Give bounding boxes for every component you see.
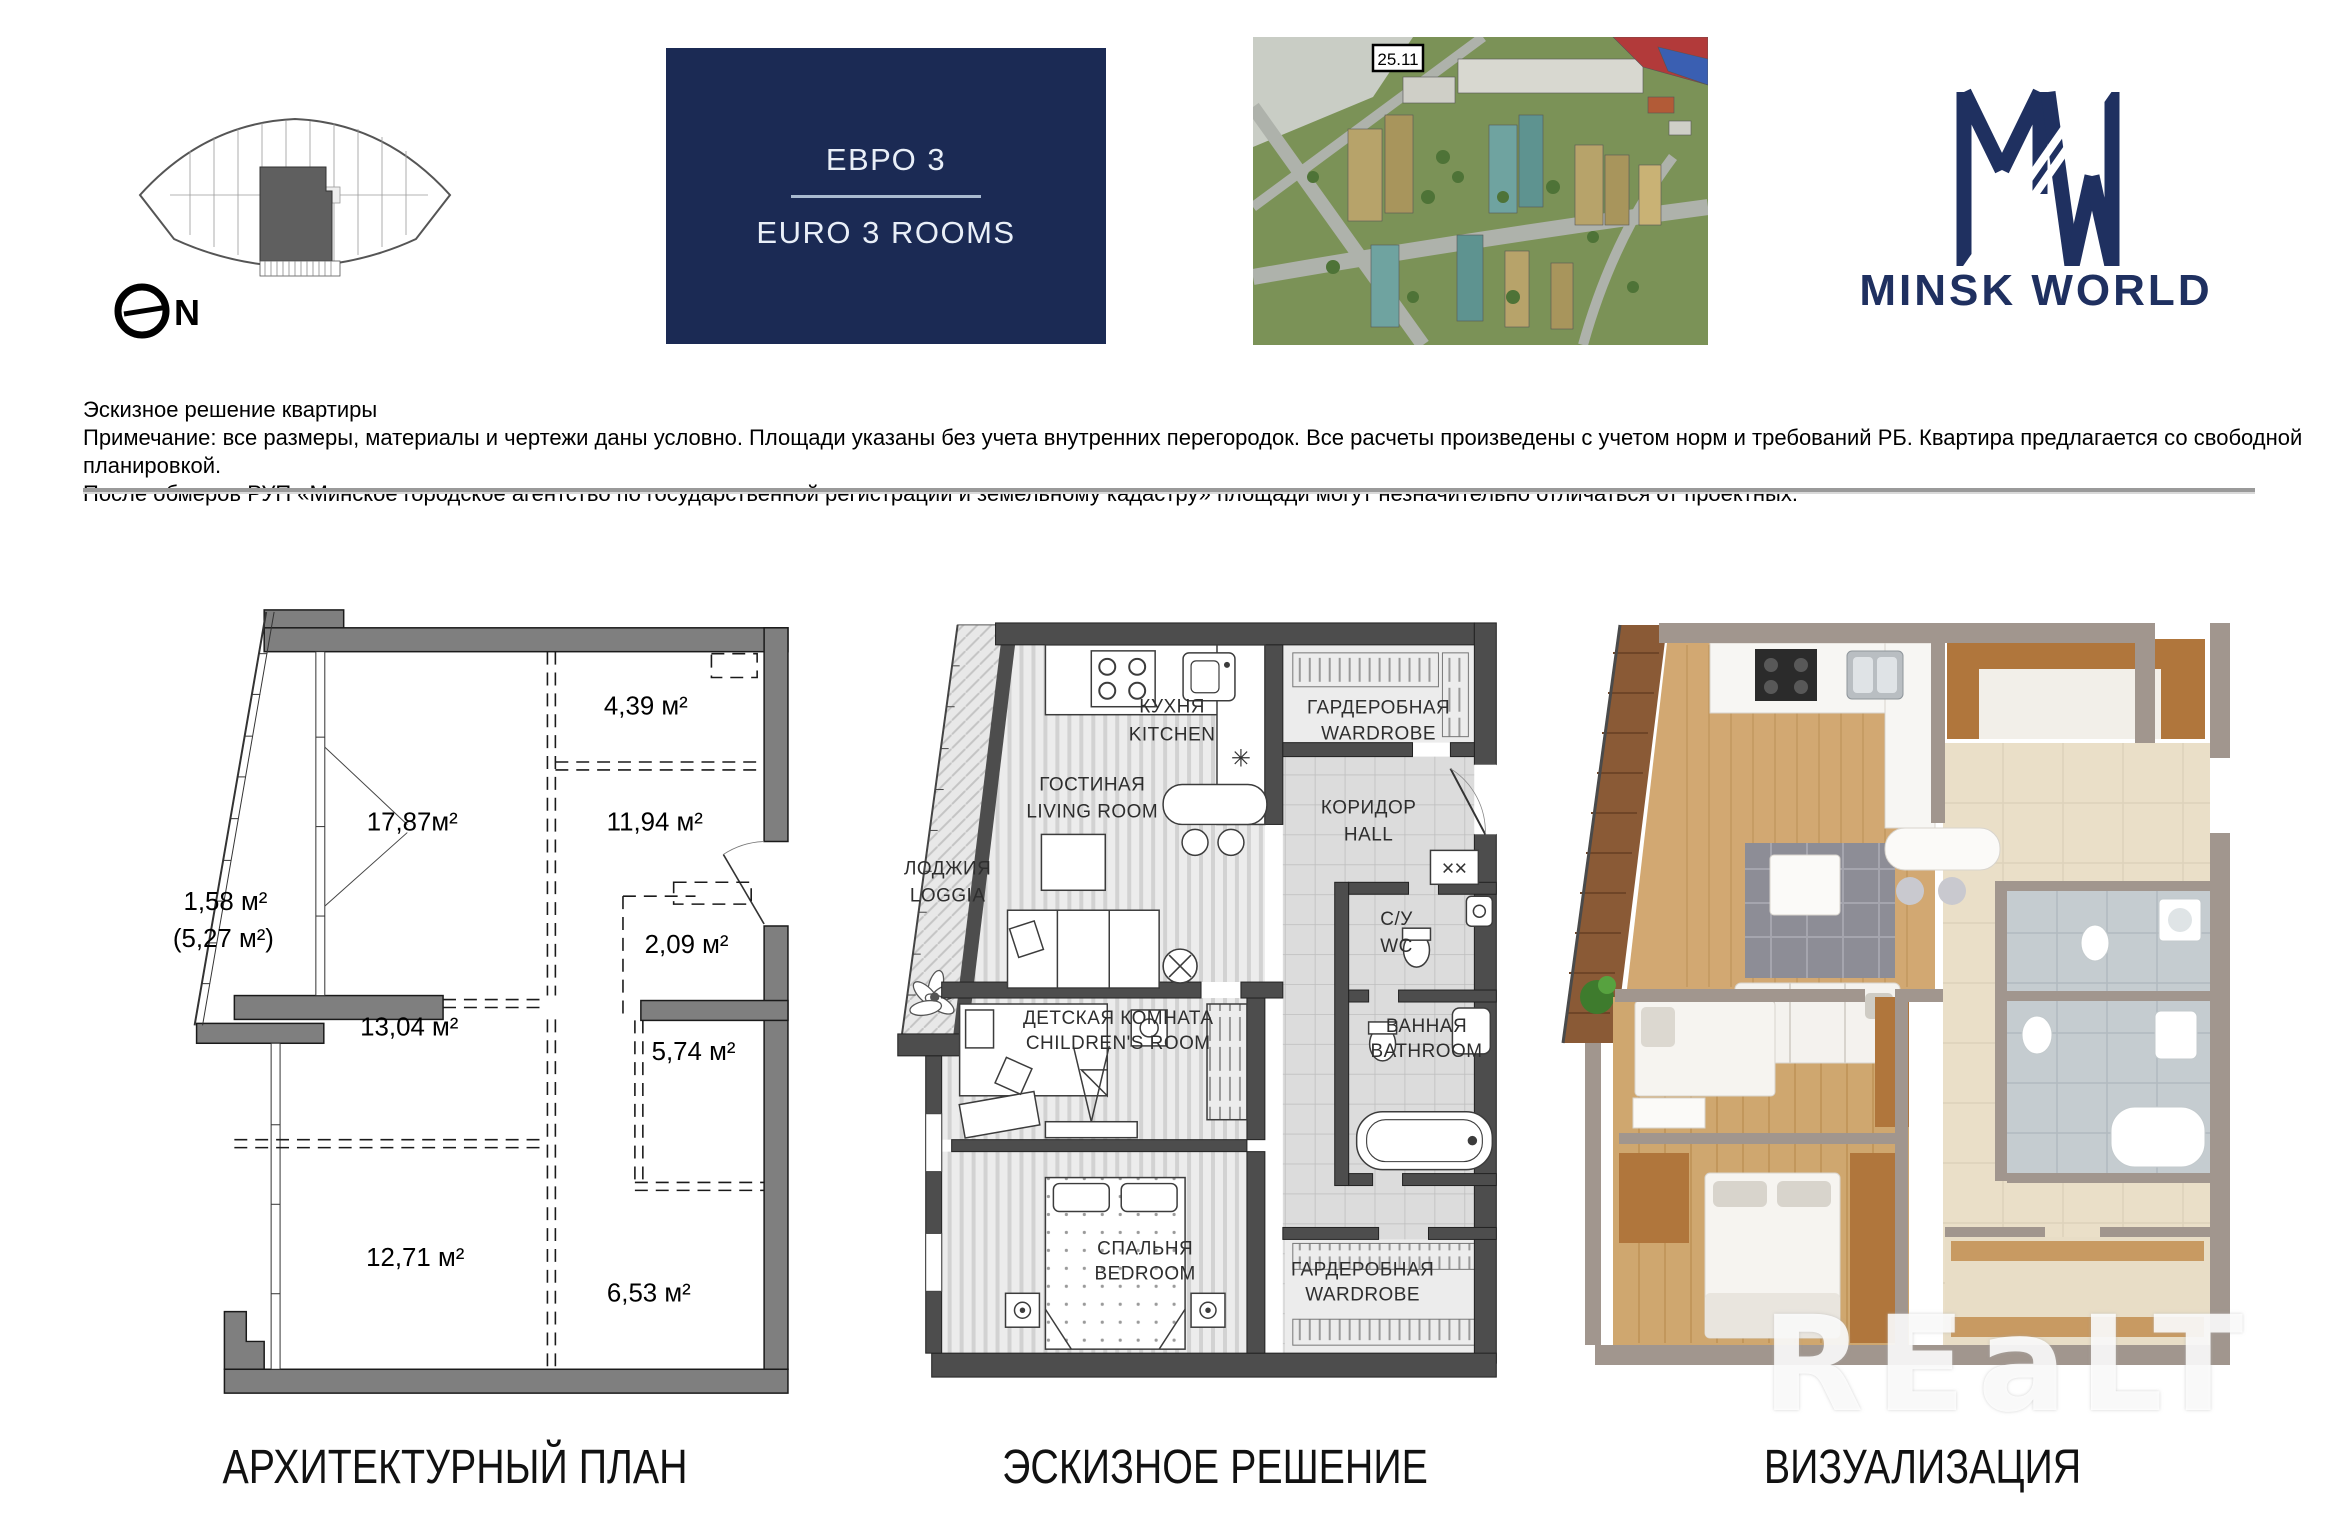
rug [1745, 843, 1895, 978]
loggia-window-wall [316, 652, 325, 996]
realt-watermark: REaLT [1762, 1288, 2255, 1442]
walls [197, 610, 788, 1393]
label-wardrobe-bottom-ru: ГАРДЕРОБНАЯ [1291, 1259, 1434, 1280]
label-bedroom-en: BEDROOM [1094, 1263, 1195, 1284]
door-mark: ×× [1430, 850, 1478, 884]
svg-text:××: ×× [1442, 855, 1468, 880]
badge-title-ru: ЕВРО 3 [826, 142, 946, 178]
building-number: 25.11 [1377, 50, 1418, 69]
label-kitchen-ru: КУХНЯ [1139, 697, 1205, 718]
area-527: (5,27 м²) [173, 925, 274, 953]
area-209: 2,09 м² [645, 931, 729, 959]
north-compass-icon: N [118, 287, 200, 335]
flyer-page: N ЕВРО 3 EURO 3 ROOMS [0, 0, 2338, 1518]
label-kitchen-en: KITCHEN [1129, 725, 1216, 746]
caption-architectural: АРХИТЕКТУРНЫЙ ПЛАН [176, 1440, 734, 1495]
aerial-photo: 25.11 [1253, 37, 1708, 345]
label-hall-ru: КОРИДОР [1321, 797, 1416, 818]
building-floorplate: N [110, 95, 460, 345]
sketch-plan: ✳ ×× [895, 595, 1535, 1413]
label-children-en: CHILDREN'S ROOM [1026, 1033, 1211, 1054]
fan-icon [1163, 949, 1197, 983]
area-574: 5,74 м² [652, 1038, 736, 1066]
vent-symbol: ✳ [1231, 746, 1251, 773]
label-wc-ru: С/У [1380, 909, 1413, 930]
label-children-ru: ДЕТСКАЯ КОМНАТА [1023, 1008, 1214, 1029]
label-wardrobe-top-ru: ГАРДЕРОБНАЯ [1307, 698, 1450, 719]
area-653: 6,53 м² [607, 1280, 691, 1308]
north-label: N [174, 292, 200, 333]
label-wc-en: WC [1380, 936, 1413, 957]
label-loggia-ru: ЛОДЖИЯ [904, 858, 991, 879]
apartment-type-badge: ЕВРО 3 EURO 3 ROOMS [666, 48, 1106, 344]
area-1304: 13,04 м² [360, 1013, 459, 1041]
label-wardrobe-top-en: WARDROBE [1321, 724, 1436, 745]
loggia-glazing [195, 612, 275, 1025]
building-number-flag: 25.11 [1373, 45, 1423, 71]
area-1271: 12,71 м² [366, 1244, 465, 1272]
left-window-wall [271, 1043, 280, 1369]
label-bathroom-en: BATHROOM [1370, 1041, 1482, 1062]
label-living-en: LIVING ROOM [1026, 801, 1158, 822]
label-bathroom-ru: ВАННАЯ [1386, 1016, 1467, 1037]
label-living-ru: ГОСТИНАЯ [1039, 775, 1145, 796]
section-divider [83, 488, 2255, 494]
area-1194: 11,94 м² [607, 809, 704, 837]
minsk-world-logo-icon [1952, 66, 2128, 266]
caption-visualization: ВИЗУАЛИЗАЦИЯ [1621, 1440, 2224, 1495]
label-wardrobe-bottom-en: WARDROBE [1305, 1284, 1420, 1305]
label-loggia-en: LOGGIA [910, 885, 986, 906]
bar [1885, 828, 2000, 870]
area-439: 4,39 м² [604, 692, 688, 720]
brand-wordmark: MINSK WORLD [1855, 266, 2217, 316]
entry-opening [2210, 758, 2230, 833]
area-1787: 17,87м² [367, 809, 458, 837]
disclaimer-line1: Эскизное решение квартиры [83, 396, 2308, 424]
stair-hatch [260, 261, 340, 276]
label-hall-en: HALL [1344, 824, 1393, 845]
label-bedroom-ru: СПАЛЬНЯ [1097, 1238, 1193, 1259]
badge-title-en: EURO 3 ROOMS [756, 215, 1015, 251]
badge-divider [791, 195, 981, 198]
disclaimer-line2: Примечание: все размеры, материалы и чер… [83, 424, 2308, 480]
architectural-plan: 4,39 м² 17,87м² 11,94 м² 2,09 м² 1,58 м²… [115, 598, 795, 1413]
caption-sketch: ЭСКИЗНОЕ РЕШЕНИЕ [953, 1440, 1478, 1495]
highlighted-unit [260, 167, 332, 261]
disclaimer-line3: После обмеров РУП «Минское городское аге… [83, 480, 2308, 508]
area-158: 1,58 м² [184, 888, 268, 916]
